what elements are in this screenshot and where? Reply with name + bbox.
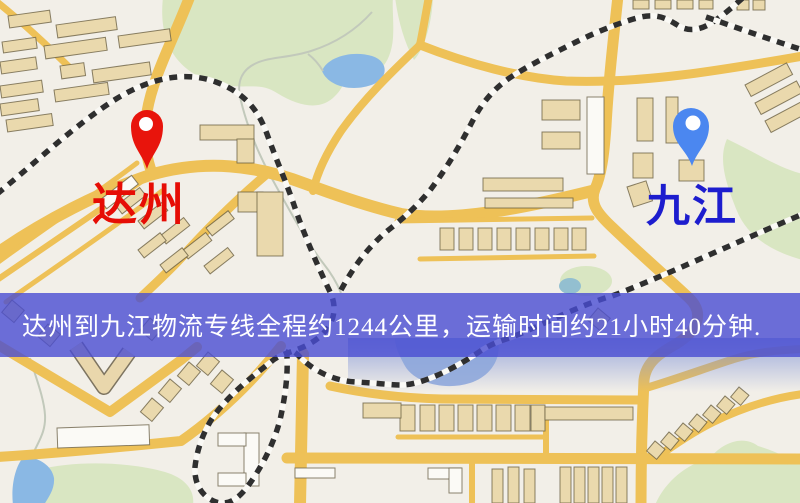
- route-info-text: 达州到九江物流专线全程约1244公里，运输时间约21小时40分钟.: [22, 307, 761, 343]
- destination-pin-hole: [686, 116, 701, 131]
- route-info-banner: 达州到九江物流专线全程约1244公里，运输时间约21小时40分钟.: [0, 293, 800, 357]
- origin-pin-hole: [139, 117, 153, 131]
- map-canvas: 达州 九江: [0, 0, 800, 503]
- origin-city-label: 达州: [92, 180, 186, 230]
- map-screenshot: 达州 九江 达州到九江物流专线全程约1244公里，运输时间约21小时40分钟.: [0, 0, 800, 503]
- destination-city-label: 九江: [646, 182, 738, 231]
